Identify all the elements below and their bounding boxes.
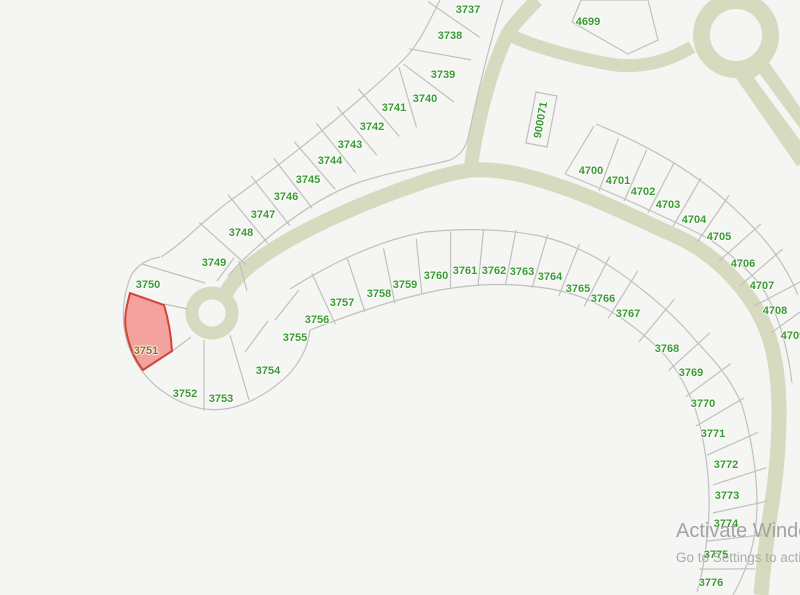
lot-label-3744: 3744 xyxy=(318,155,342,167)
lot-label-3752: 3752 xyxy=(173,388,197,400)
lot-label-3746: 3746 xyxy=(274,191,298,203)
lot-label-3756: 3756 xyxy=(305,314,329,326)
lot-boundary-3773-3774 xyxy=(713,501,768,513)
parcel-map-canvas xyxy=(0,0,800,595)
lot-label-3740: 3740 xyxy=(413,93,437,105)
cluster-division-3750-3751 xyxy=(164,304,188,309)
activate-windows-watermark: Activate Windows Go to Settings to activ… xyxy=(676,519,800,567)
parcel-map[interactable]: 3737373837393740374137423743374437453746… xyxy=(0,0,800,595)
lot-label-3742: 3742 xyxy=(360,121,384,133)
lot-label-3755: 3755 xyxy=(283,332,307,344)
lot-label-3768: 3768 xyxy=(655,343,679,355)
watermark-line1: Activate Windows xyxy=(676,519,800,543)
lot-label-3754: 3754 xyxy=(256,365,280,377)
cluster-division-3754-3755 xyxy=(245,321,268,352)
lot-label-3766: 3766 xyxy=(591,293,615,305)
lot-label-3759: 3759 xyxy=(393,279,417,291)
lot-label-3773: 3773 xyxy=(715,490,739,502)
lot-label-4708: 4708 xyxy=(763,305,787,317)
lot-label-4700: 4700 xyxy=(579,165,603,177)
watermark-line2: Go to Settings to activate Windows. xyxy=(676,549,800,567)
lot-label-3762: 3762 xyxy=(482,265,506,277)
lot-label-3763: 3763 xyxy=(510,266,534,278)
diagonal-strip-outer-boundary xyxy=(161,0,440,257)
crescent-inner-boundary xyxy=(310,284,709,592)
lot-label-3758: 3758 xyxy=(367,288,391,300)
lot-label-3760: 3760 xyxy=(424,270,448,282)
lot-label-3748: 3748 xyxy=(229,227,253,239)
road-to-roundabout xyxy=(507,34,692,66)
lot-label-3764: 3764 xyxy=(538,271,562,283)
lot-label-4705: 4705 xyxy=(707,231,731,243)
lot-label-4703: 4703 xyxy=(656,199,680,211)
lot-label-3737: 3737 xyxy=(456,4,480,16)
cluster-division-3751-3752 xyxy=(171,337,191,352)
lot-label-3749: 3749 xyxy=(202,257,226,269)
lot-label-3769: 3769 xyxy=(679,367,703,379)
lot-label-4702: 4702 xyxy=(631,186,655,198)
cluster-division-3753-3754 xyxy=(230,335,249,400)
lot-label-3739: 3739 xyxy=(431,69,455,81)
lot-label-3767: 3767 xyxy=(616,308,640,320)
lot-label-3747: 3747 xyxy=(251,209,275,221)
lot-label-4699: 4699 xyxy=(576,16,600,28)
lot-label-4704: 4704 xyxy=(682,214,706,226)
lot-label-3741: 3741 xyxy=(382,102,406,114)
lot-label-4707: 4707 xyxy=(750,280,774,292)
lot-label-3745: 3745 xyxy=(296,174,320,186)
lot-boundary-3738-3739 xyxy=(409,49,471,60)
lot-label-3751: 3751 xyxy=(134,345,158,357)
lot-label-3776: 3776 xyxy=(699,577,723,589)
lot-label-4706: 4706 xyxy=(731,258,755,270)
lot-label-3771: 3771 xyxy=(701,428,725,440)
lot-division-lines xyxy=(199,1,800,569)
lot-label-3765: 3765 xyxy=(566,283,590,295)
lot-label-4709: 4709 xyxy=(781,330,800,342)
lot-label-4701: 4701 xyxy=(606,175,630,187)
lot-boundary-3767-3768 xyxy=(639,299,675,342)
lot-label-3757: 3757 xyxy=(330,297,354,309)
road-north xyxy=(471,0,537,171)
lot-label-3738: 3738 xyxy=(438,30,462,42)
lot-label-3753: 3753 xyxy=(209,393,233,405)
cluster-division-3755-3756 xyxy=(275,290,299,320)
lot-label-3772: 3772 xyxy=(714,459,738,471)
lot-label-3743: 3743 xyxy=(338,139,362,151)
lot-label-3750: 3750 xyxy=(136,279,160,291)
lot-label-3761: 3761 xyxy=(453,265,477,277)
cul-de-sac-island xyxy=(199,300,226,327)
lot-label-3770: 3770 xyxy=(691,398,715,410)
roundabout-island xyxy=(710,9,762,61)
